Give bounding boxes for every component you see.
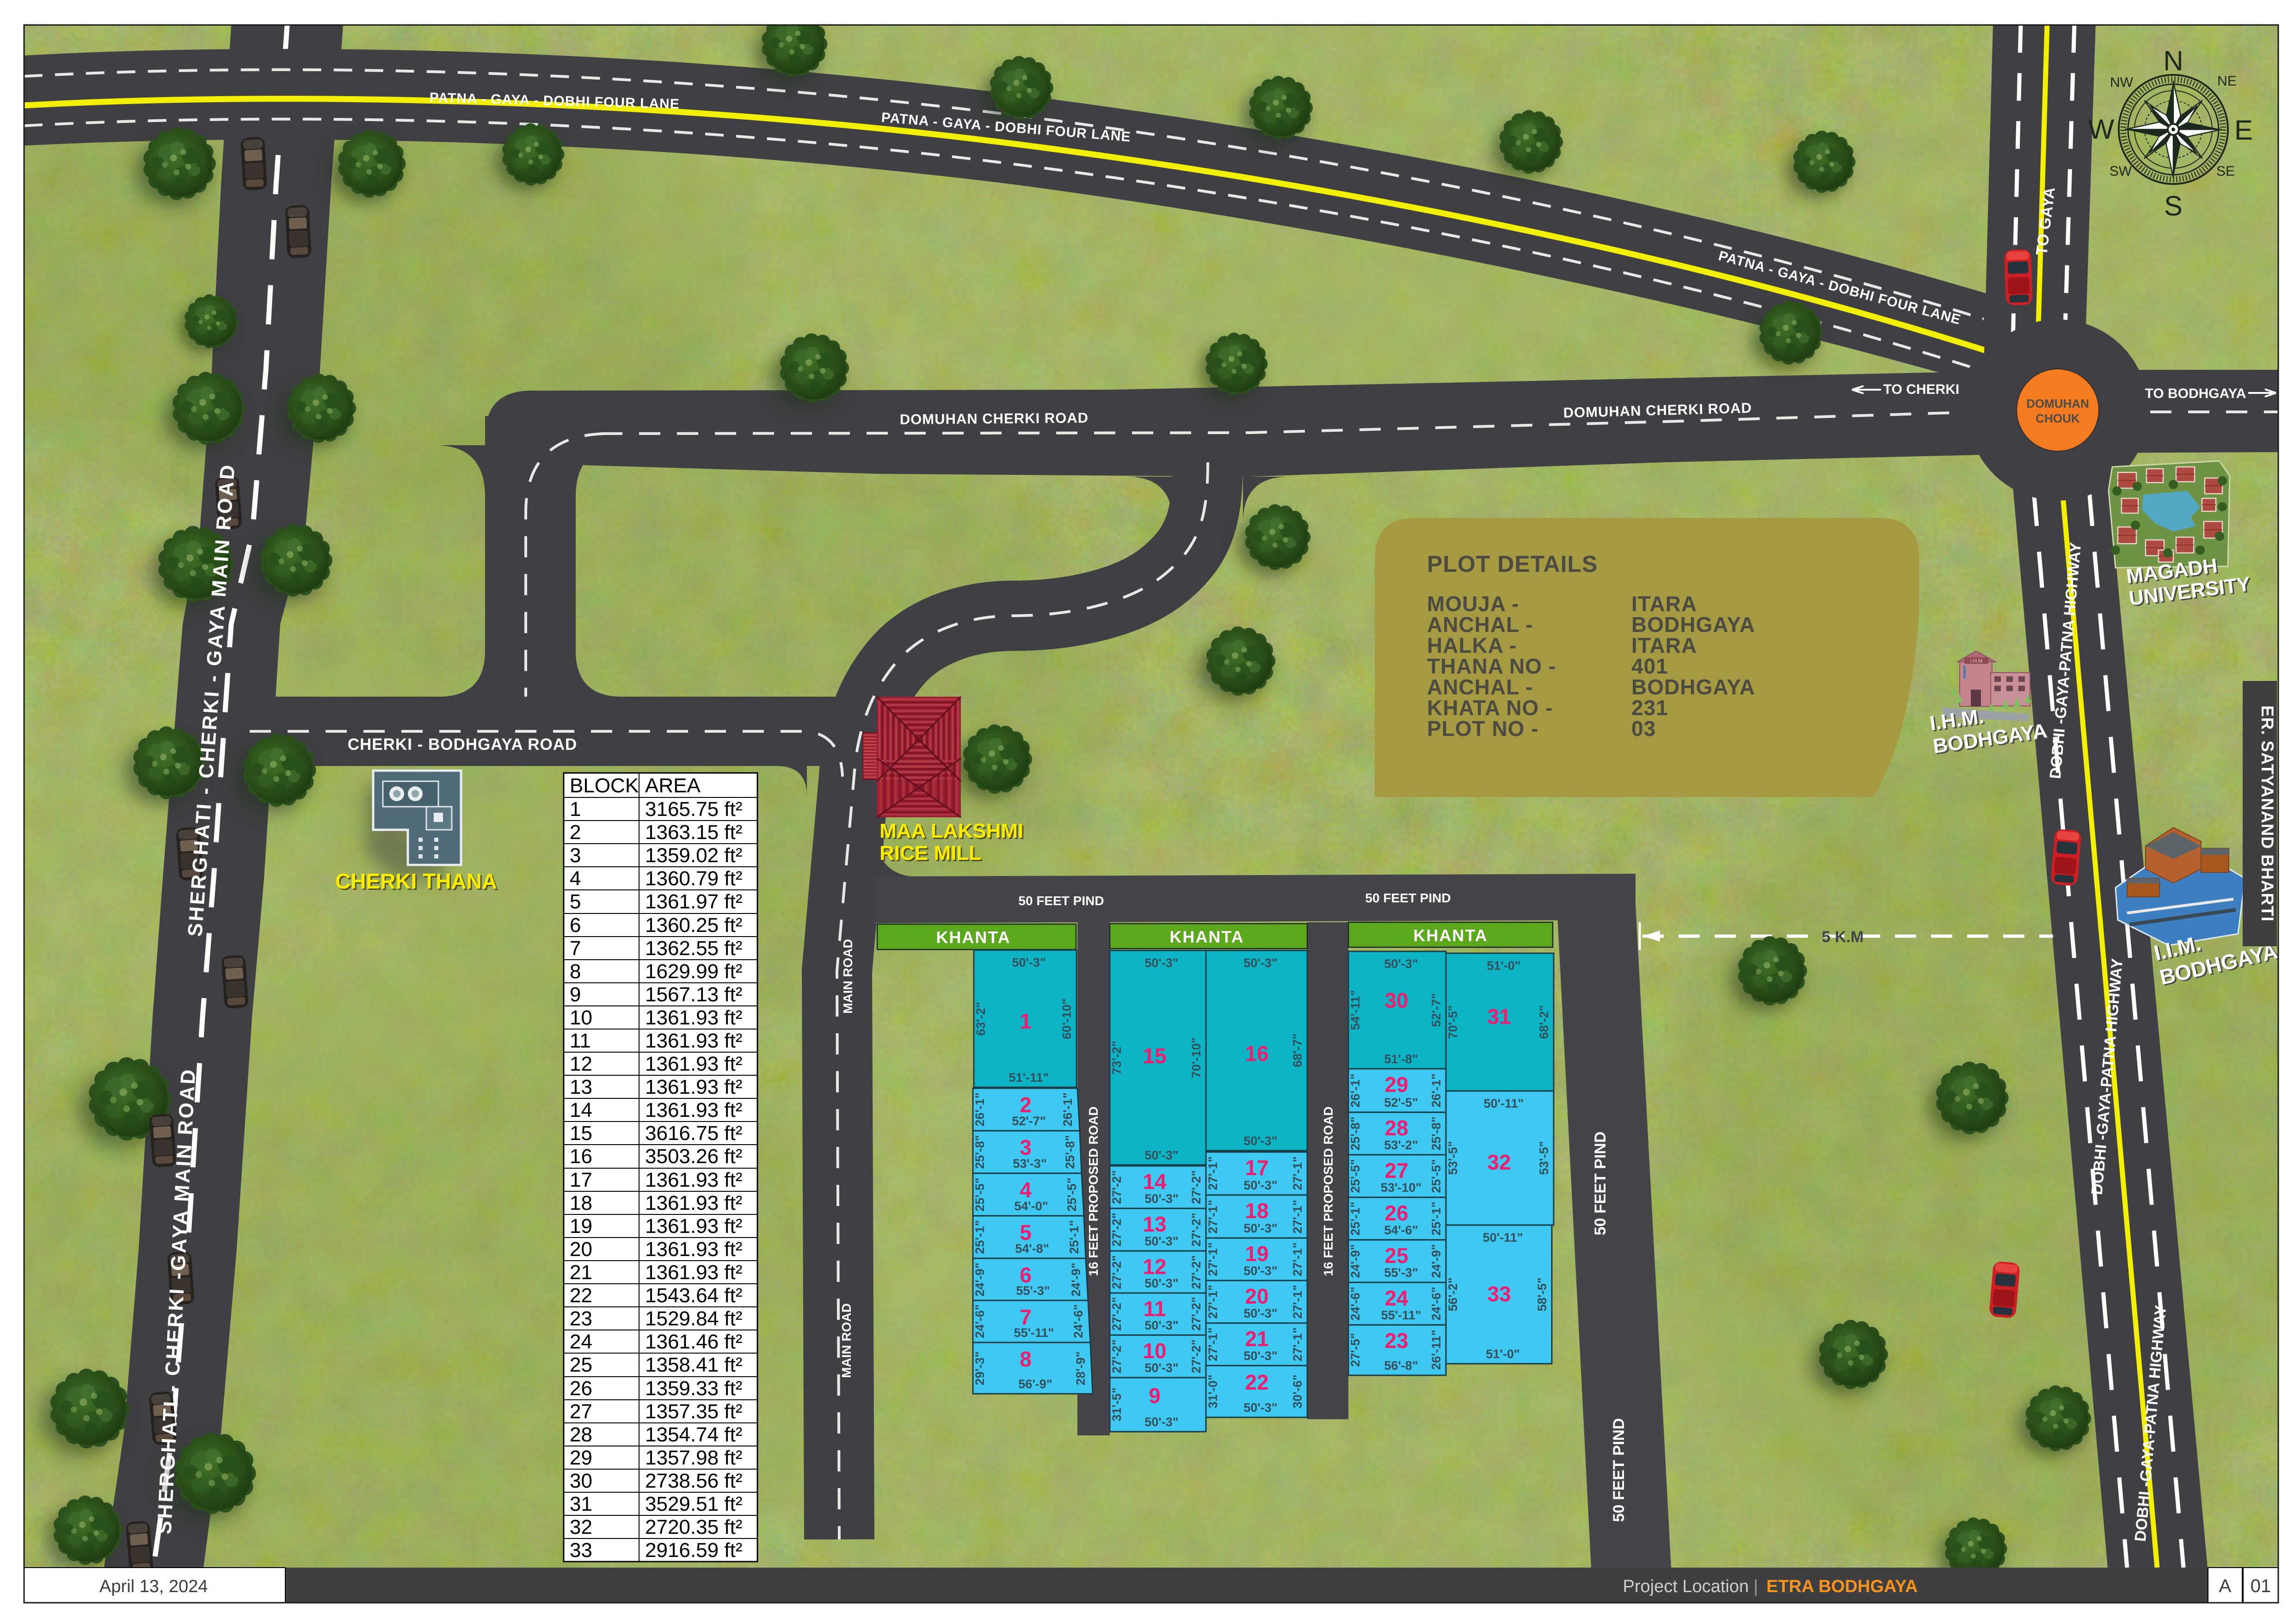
svg-text:25'-1": 25'-1" bbox=[1067, 1220, 1081, 1254]
svg-text:25'-1": 25'-1" bbox=[1429, 1201, 1443, 1235]
svg-text:26'-1": 26'-1" bbox=[973, 1092, 987, 1126]
svg-text:1: 1 bbox=[1020, 1009, 1032, 1033]
svg-text:25: 25 bbox=[570, 1354, 592, 1376]
svg-text:16 FEET PROPOSED ROAD: 16 FEET PROPOSED ROAD bbox=[1321, 1106, 1335, 1276]
svg-text:5: 5 bbox=[1020, 1220, 1032, 1244]
svg-text:SE: SE bbox=[2216, 164, 2235, 179]
svg-text:I.H.M: I.H.M bbox=[1970, 658, 1982, 664]
svg-text:27'-1": 27'-1" bbox=[1291, 1327, 1304, 1361]
svg-text:10: 10 bbox=[570, 1006, 592, 1029]
svg-text:20: 20 bbox=[570, 1238, 592, 1261]
svg-text:28: 28 bbox=[570, 1423, 592, 1446]
svg-text:1359.02 ft²: 1359.02 ft² bbox=[645, 844, 742, 867]
svg-text:29'-3": 29'-3" bbox=[973, 1351, 987, 1385]
svg-text:27'-2": 27'-2" bbox=[1110, 1213, 1124, 1246]
svg-text:16: 16 bbox=[570, 1145, 592, 1168]
svg-text:50'-3": 50'-3" bbox=[1144, 1415, 1178, 1429]
svg-text:68'-7": 68'-7" bbox=[1291, 1033, 1304, 1067]
svg-text:27: 27 bbox=[1384, 1158, 1408, 1183]
svg-text:24'-9": 24'-9" bbox=[1069, 1262, 1083, 1296]
svg-text:56'-8": 56'-8" bbox=[1384, 1359, 1418, 1373]
svg-text:1360.25 ft²: 1360.25 ft² bbox=[645, 914, 742, 937]
svg-text:TO CHERKI: TO CHERKI bbox=[1883, 382, 1959, 397]
svg-text:15: 15 bbox=[1143, 1044, 1166, 1068]
svg-text:2738.56 ft²: 2738.56 ft² bbox=[645, 1470, 742, 1492]
svg-text:17: 17 bbox=[1245, 1156, 1268, 1180]
svg-text:22: 22 bbox=[570, 1284, 592, 1307]
svg-text:5 K.M: 5 K.M bbox=[1822, 928, 1864, 946]
svg-text:1359.33 ft²: 1359.33 ft² bbox=[645, 1377, 742, 1400]
svg-text:3503.26 ft²: 3503.26 ft² bbox=[645, 1145, 742, 1168]
svg-text:50'-3": 50'-3" bbox=[1144, 1192, 1178, 1206]
svg-text:25'-8": 25'-8" bbox=[973, 1135, 987, 1169]
svg-text:50'-11": 50'-11" bbox=[1483, 1231, 1523, 1244]
svg-text:24'-9": 24'-9" bbox=[973, 1262, 987, 1296]
svg-text:24'-6": 24'-6" bbox=[973, 1304, 987, 1338]
svg-text:50'-3": 50'-3" bbox=[1384, 957, 1418, 971]
svg-text:73'-2": 73'-2" bbox=[1110, 1041, 1124, 1074]
svg-text:32: 32 bbox=[570, 1516, 592, 1538]
svg-text:55'-3": 55'-3" bbox=[1384, 1266, 1418, 1280]
svg-text:11: 11 bbox=[1144, 1297, 1166, 1321]
svg-text:26: 26 bbox=[570, 1377, 592, 1400]
svg-text:53'-5": 53'-5" bbox=[1537, 1141, 1551, 1175]
svg-text:24'-9": 24'-9" bbox=[1429, 1244, 1443, 1278]
svg-text:1358.41 ft²: 1358.41 ft² bbox=[645, 1354, 742, 1376]
svg-text:21: 21 bbox=[1245, 1327, 1268, 1351]
svg-text:19: 19 bbox=[1245, 1242, 1268, 1266]
svg-text:25'-1": 25'-1" bbox=[973, 1220, 987, 1254]
svg-text:2: 2 bbox=[1020, 1093, 1032, 1117]
svg-text:50'-3": 50'-3" bbox=[1243, 1349, 1277, 1363]
svg-text:27'-1": 27'-1" bbox=[1291, 1242, 1304, 1276]
svg-text:24'-6": 24'-6" bbox=[1071, 1304, 1085, 1338]
svg-text:12: 12 bbox=[570, 1053, 592, 1075]
svg-text:4: 4 bbox=[570, 867, 581, 890]
svg-text:ETRA BODHGAYA: ETRA BODHGAYA bbox=[1766, 1577, 1918, 1596]
svg-text:22: 22 bbox=[1245, 1370, 1268, 1394]
svg-text:NE: NE bbox=[2217, 74, 2237, 89]
svg-text:50 FEET PIND: 50 FEET PIND bbox=[1610, 1418, 1628, 1522]
svg-text:24'-6": 24'-6" bbox=[1429, 1287, 1443, 1320]
svg-text:58'-5": 58'-5" bbox=[1535, 1277, 1549, 1311]
svg-text:12: 12 bbox=[1143, 1255, 1166, 1279]
svg-text:26'-1": 26'-1" bbox=[1429, 1073, 1443, 1107]
svg-text:03: 03 bbox=[1631, 717, 1656, 741]
svg-text:31'-5": 31'-5" bbox=[1110, 1387, 1124, 1421]
svg-text:50'-3": 50'-3" bbox=[1243, 1221, 1277, 1235]
svg-text:27'-2": 27'-2" bbox=[1189, 1297, 1203, 1330]
svg-text:27'-2": 27'-2" bbox=[1110, 1255, 1124, 1289]
svg-text:1363.15 ft²: 1363.15 ft² bbox=[645, 821, 742, 844]
svg-text:30'-6": 30'-6" bbox=[1291, 1374, 1304, 1408]
svg-text:1361.93 ft²: 1361.93 ft² bbox=[645, 1076, 742, 1098]
svg-text:33: 33 bbox=[570, 1539, 592, 1562]
svg-text:MAA LAKSHMI: MAA LAKSHMI bbox=[879, 820, 1023, 842]
svg-text:19: 19 bbox=[570, 1215, 592, 1238]
svg-text:27'-2": 27'-2" bbox=[1110, 1339, 1124, 1373]
svg-text:55'-11": 55'-11" bbox=[1014, 1326, 1054, 1340]
svg-text:SW: SW bbox=[2109, 164, 2132, 179]
svg-text:16 FEET PROPOSED ROAD: 16 FEET PROPOSED ROAD bbox=[1086, 1106, 1101, 1276]
svg-text:31: 31 bbox=[1487, 1005, 1511, 1029]
svg-text:1361.46 ft²: 1361.46 ft² bbox=[645, 1330, 742, 1353]
svg-text:1629.99 ft²: 1629.99 ft² bbox=[645, 960, 742, 983]
svg-text:52'-7": 52'-7" bbox=[1012, 1114, 1046, 1128]
svg-text:53'-2": 53'-2" bbox=[1384, 1138, 1418, 1152]
svg-text:50'-3": 50'-3" bbox=[1012, 956, 1046, 969]
svg-text:25'-5": 25'-5" bbox=[1065, 1177, 1079, 1211]
svg-text:27: 27 bbox=[570, 1400, 592, 1423]
svg-text:25'-5": 25'-5" bbox=[1348, 1159, 1362, 1193]
svg-text:31: 31 bbox=[570, 1493, 592, 1515]
svg-text:16: 16 bbox=[1245, 1042, 1268, 1066]
svg-text:28: 28 bbox=[1384, 1116, 1408, 1140]
svg-text:24'-6": 24'-6" bbox=[1348, 1287, 1362, 1320]
svg-text:7: 7 bbox=[570, 937, 581, 960]
svg-text:60'-10": 60'-10" bbox=[1060, 999, 1074, 1039]
svg-text:01: 01 bbox=[2251, 1576, 2271, 1596]
svg-text:6: 6 bbox=[570, 914, 581, 937]
svg-text:PLOT DETAILS: PLOT DETAILS bbox=[1427, 551, 1598, 577]
svg-text:50'-3": 50'-3" bbox=[1144, 1276, 1178, 1290]
svg-text:13: 13 bbox=[1143, 1212, 1166, 1236]
svg-text:52'-5": 52'-5" bbox=[1384, 1096, 1418, 1109]
svg-text:3529.51 ft²: 3529.51 ft² bbox=[645, 1493, 742, 1515]
svg-text:70'-10": 70'-10" bbox=[1189, 1037, 1203, 1078]
svg-text:33: 33 bbox=[1487, 1282, 1511, 1306]
svg-text:8: 8 bbox=[1020, 1347, 1032, 1371]
svg-text:1361.93 ft²: 1361.93 ft² bbox=[645, 1215, 742, 1238]
svg-text:17: 17 bbox=[570, 1169, 592, 1191]
svg-text:50'-11": 50'-11" bbox=[1484, 1097, 1524, 1110]
svg-text:50'-3": 50'-3" bbox=[1144, 956, 1178, 970]
svg-text:27'-1": 27'-1" bbox=[1206, 1200, 1220, 1233]
svg-text:9: 9 bbox=[570, 983, 581, 1006]
svg-text:51'-8": 51'-8" bbox=[1384, 1052, 1418, 1066]
svg-text:1362.55 ft²: 1362.55 ft² bbox=[645, 937, 742, 960]
svg-text:50'-3": 50'-3" bbox=[1144, 1234, 1178, 1248]
svg-text:54'-0": 54'-0" bbox=[1014, 1199, 1048, 1213]
svg-text:50'-3": 50'-3" bbox=[1243, 1401, 1277, 1415]
svg-text:KHANTA: KHANTA bbox=[1413, 926, 1488, 945]
svg-text:27'-1": 27'-1" bbox=[1206, 1242, 1220, 1276]
svg-text:51'-0": 51'-0" bbox=[1487, 959, 1520, 973]
svg-text:21: 21 bbox=[570, 1261, 592, 1284]
svg-text:ER. SATYANAND BHARTI: ER. SATYANAND BHARTI bbox=[2258, 705, 2277, 922]
svg-text:50'-3": 50'-3" bbox=[1243, 1306, 1277, 1320]
svg-text:9: 9 bbox=[1149, 1384, 1161, 1408]
svg-text:50'-3": 50'-3" bbox=[1144, 1361, 1178, 1375]
svg-text:56'-2": 56'-2" bbox=[1446, 1277, 1460, 1311]
svg-text:1543.64 ft²: 1543.64 ft² bbox=[645, 1284, 742, 1307]
svg-text:25'-8": 25'-8" bbox=[1348, 1116, 1362, 1150]
svg-text:51'-0": 51'-0" bbox=[1486, 1347, 1519, 1361]
svg-text:50'-3": 50'-3" bbox=[1243, 1134, 1277, 1148]
svg-text:RICE MILL: RICE MILL bbox=[879, 842, 981, 864]
svg-text:56'-9": 56'-9" bbox=[1018, 1377, 1052, 1391]
svg-text:1529.84 ft²: 1529.84 ft² bbox=[645, 1307, 742, 1330]
svg-text:1361.93 ft²: 1361.93 ft² bbox=[645, 1053, 742, 1075]
svg-text:18: 18 bbox=[570, 1192, 592, 1214]
svg-text:31'-0": 31'-0" bbox=[1206, 1374, 1220, 1408]
svg-text:23: 23 bbox=[1384, 1329, 1408, 1353]
svg-text:26'-1": 26'-1" bbox=[1348, 1073, 1362, 1107]
svg-text:|: | bbox=[1753, 1577, 1758, 1596]
svg-text:68'-2": 68'-2" bbox=[1537, 1005, 1551, 1039]
svg-text:DOMUHAN CHERKI ROAD: DOMUHAN CHERKI ROAD bbox=[900, 410, 1089, 428]
svg-text:26'-1": 26'-1" bbox=[1061, 1092, 1075, 1126]
svg-text:30: 30 bbox=[570, 1470, 592, 1492]
svg-text:1361.97 ft²: 1361.97 ft² bbox=[645, 890, 742, 913]
svg-text:3165.75 ft²: 3165.75 ft² bbox=[645, 798, 742, 821]
svg-text:2: 2 bbox=[570, 821, 581, 844]
svg-text:27'-2": 27'-2" bbox=[1189, 1170, 1203, 1204]
svg-text:April 13, 2024: April 13, 2024 bbox=[99, 1577, 208, 1596]
svg-text:53'-5": 53'-5" bbox=[1446, 1141, 1460, 1175]
svg-text:18: 18 bbox=[1245, 1199, 1268, 1223]
svg-text:50'-3": 50'-3" bbox=[1243, 1264, 1277, 1278]
svg-text:50'-3": 50'-3" bbox=[1144, 1318, 1178, 1332]
svg-text:13: 13 bbox=[570, 1076, 592, 1098]
svg-text:CHERKI - BODHGAYA ROAD: CHERKI - BODHGAYA ROAD bbox=[348, 735, 578, 754]
svg-text:DOMUHAN: DOMUHAN bbox=[2026, 397, 2089, 411]
svg-text:24'-9": 24'-9" bbox=[1348, 1244, 1362, 1278]
svg-text:27'-1": 27'-1" bbox=[1291, 1200, 1304, 1233]
svg-text:3616.75 ft²: 3616.75 ft² bbox=[645, 1122, 742, 1145]
svg-text:PLOT NO -: PLOT NO - bbox=[1427, 717, 1539, 741]
svg-text:26'-11": 26'-11" bbox=[1429, 1330, 1443, 1370]
svg-text:TO BODHGAYA: TO BODHGAYA bbox=[2145, 386, 2246, 401]
svg-text:70'-5": 70'-5" bbox=[1446, 1005, 1460, 1039]
svg-text:1: 1 bbox=[570, 798, 581, 821]
svg-text:54'-11": 54'-11" bbox=[1348, 990, 1362, 1030]
svg-text:CHOUK: CHOUK bbox=[2036, 411, 2080, 425]
svg-text:NW: NW bbox=[2110, 75, 2134, 90]
svg-text:25'-8": 25'-8" bbox=[1429, 1116, 1443, 1150]
svg-text:30: 30 bbox=[1384, 988, 1408, 1012]
svg-text:3: 3 bbox=[570, 844, 581, 867]
svg-text:S: S bbox=[2164, 190, 2183, 221]
svg-text:28'-9": 28'-9" bbox=[1074, 1351, 1088, 1385]
svg-text:AREA: AREA bbox=[645, 774, 701, 797]
svg-text:11: 11 bbox=[570, 1030, 591, 1052]
svg-text:10: 10 bbox=[1143, 1339, 1166, 1363]
svg-text:1361.93 ft²: 1361.93 ft² bbox=[645, 1006, 742, 1029]
svg-text:15: 15 bbox=[570, 1122, 592, 1145]
svg-text:24: 24 bbox=[1384, 1286, 1408, 1310]
svg-text:KHANTA: KHANTA bbox=[1169, 927, 1244, 946]
svg-text:27'-2": 27'-2" bbox=[1189, 1339, 1203, 1373]
svg-text:KHANTA: KHANTA bbox=[936, 928, 1010, 947]
svg-text:2916.59 ft²: 2916.59 ft² bbox=[645, 1539, 742, 1562]
svg-text:50 FEET PIND: 50 FEET PIND bbox=[1018, 894, 1104, 908]
svg-text:1361.93 ft²: 1361.93 ft² bbox=[645, 1030, 742, 1052]
svg-text:27'-1": 27'-1" bbox=[1206, 1327, 1220, 1361]
svg-text:1361.93 ft²: 1361.93 ft² bbox=[645, 1238, 742, 1261]
svg-text:50'-3": 50'-3" bbox=[1144, 1148, 1178, 1162]
svg-text:27'-1": 27'-1" bbox=[1291, 1285, 1304, 1318]
svg-text:14: 14 bbox=[570, 1099, 592, 1121]
svg-text:27'-1": 27'-1" bbox=[1206, 1285, 1220, 1318]
svg-text:25'-5": 25'-5" bbox=[1429, 1159, 1443, 1193]
svg-text:MAIN ROAD: MAIN ROAD bbox=[839, 1303, 854, 1378]
svg-text:54'-8": 54'-8" bbox=[1015, 1242, 1049, 1256]
svg-text:27'-2": 27'-2" bbox=[1110, 1170, 1124, 1204]
svg-text:3: 3 bbox=[1020, 1135, 1032, 1159]
svg-text:1567.13 ft²: 1567.13 ft² bbox=[645, 983, 742, 1006]
svg-text:A: A bbox=[2219, 1576, 2232, 1596]
svg-text:20: 20 bbox=[1245, 1284, 1268, 1308]
svg-text:27'-5": 27'-5" bbox=[1348, 1333, 1362, 1367]
svg-text:29: 29 bbox=[570, 1446, 592, 1469]
svg-text:26: 26 bbox=[1384, 1201, 1408, 1225]
svg-text:27'-1": 27'-1" bbox=[1291, 1156, 1304, 1190]
svg-text:1361.93 ft²: 1361.93 ft² bbox=[645, 1169, 742, 1191]
svg-text:4: 4 bbox=[1020, 1178, 1032, 1202]
svg-text:1357.35 ft²: 1357.35 ft² bbox=[645, 1400, 742, 1423]
svg-text:27'-2": 27'-2" bbox=[1189, 1255, 1203, 1289]
svg-text:N: N bbox=[2163, 45, 2183, 76]
svg-text:8: 8 bbox=[570, 960, 581, 983]
svg-text:23: 23 bbox=[570, 1307, 592, 1330]
svg-text:50 FEET PIND: 50 FEET PIND bbox=[1592, 1132, 1609, 1236]
svg-text:1357.98 ft²: 1357.98 ft² bbox=[645, 1446, 742, 1469]
svg-text:53'-3": 53'-3" bbox=[1013, 1157, 1046, 1171]
svg-text:CHERKI THANA: CHERKI THANA bbox=[335, 869, 497, 893]
svg-text:25'-8": 25'-8" bbox=[1063, 1135, 1077, 1169]
svg-text:53'-10": 53'-10" bbox=[1381, 1181, 1421, 1195]
svg-text:50 FEET PIND: 50 FEET PIND bbox=[1365, 891, 1451, 905]
svg-text:27'-2": 27'-2" bbox=[1189, 1213, 1203, 1246]
svg-text:25'-5": 25'-5" bbox=[973, 1177, 987, 1211]
svg-text:29: 29 bbox=[1384, 1072, 1408, 1097]
svg-text:14: 14 bbox=[1143, 1170, 1167, 1194]
svg-text:1361.93 ft²: 1361.93 ft² bbox=[645, 1261, 742, 1284]
svg-text:25'-1": 25'-1" bbox=[1348, 1201, 1362, 1235]
svg-text:32: 32 bbox=[1487, 1150, 1511, 1174]
svg-text:55'-3": 55'-3" bbox=[1016, 1284, 1050, 1298]
svg-text:1361.93 ft²: 1361.93 ft² bbox=[645, 1192, 742, 1214]
svg-text:BLOCK: BLOCK bbox=[570, 774, 639, 797]
svg-text:E: E bbox=[2234, 115, 2253, 146]
svg-text:55'-11": 55'-11" bbox=[1381, 1308, 1421, 1322]
svg-text:5: 5 bbox=[570, 890, 581, 913]
svg-text:25: 25 bbox=[1384, 1244, 1408, 1268]
svg-text:27'-2": 27'-2" bbox=[1110, 1297, 1124, 1330]
svg-text:54'-6": 54'-6" bbox=[1384, 1223, 1418, 1237]
svg-text:1354.74 ft²: 1354.74 ft² bbox=[645, 1423, 742, 1446]
svg-text:27'-1": 27'-1" bbox=[1206, 1156, 1220, 1190]
svg-text:Project Location: Project Location bbox=[1623, 1577, 1749, 1596]
svg-text:63'-2": 63'-2" bbox=[974, 1002, 988, 1036]
svg-text:50'-3": 50'-3" bbox=[1243, 956, 1277, 970]
svg-text:24: 24 bbox=[570, 1330, 592, 1353]
svg-text:MAIN ROAD: MAIN ROAD bbox=[841, 939, 855, 1014]
svg-text:50'-3": 50'-3" bbox=[1243, 1178, 1277, 1192]
svg-text:1360.79 ft²: 1360.79 ft² bbox=[645, 867, 742, 890]
svg-text:52'-7": 52'-7" bbox=[1429, 993, 1443, 1027]
svg-text:W: W bbox=[2088, 114, 2115, 145]
svg-text:51'-11": 51'-11" bbox=[1009, 1071, 1049, 1085]
svg-text:2720.35 ft²: 2720.35 ft² bbox=[645, 1516, 742, 1538]
svg-text:1361.93 ft²: 1361.93 ft² bbox=[645, 1099, 742, 1121]
